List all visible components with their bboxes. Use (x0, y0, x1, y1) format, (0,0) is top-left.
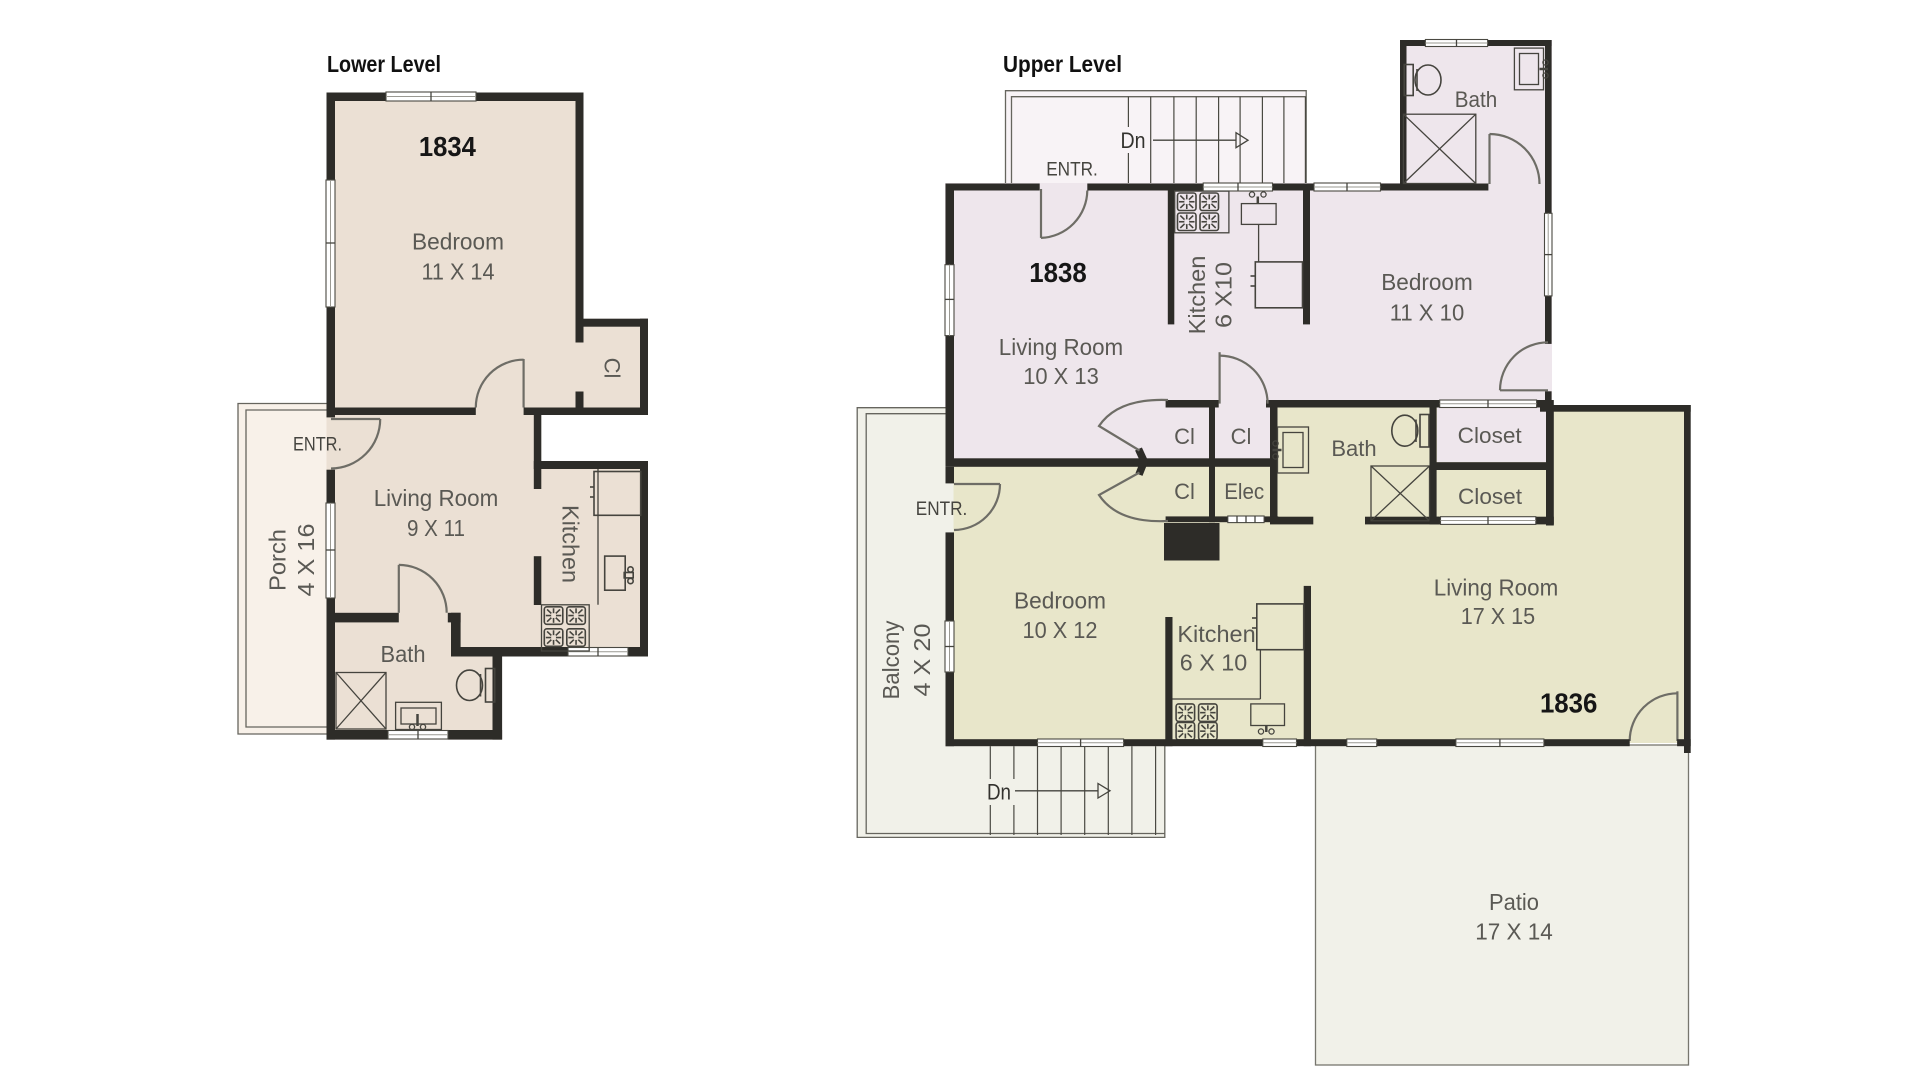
svg-text:Bedroom: Bedroom (1381, 269, 1473, 295)
svg-text:6 X10: 6 X10 (1211, 262, 1237, 328)
svg-text:6 X 10: 6 X 10 (1180, 650, 1248, 676)
svg-text:Cl: Cl (1174, 479, 1195, 504)
svg-text:Lower Level: Lower Level (327, 51, 441, 77)
svg-text:ENTR.: ENTR. (1046, 160, 1098, 181)
svg-text:Bath: Bath (1455, 87, 1498, 112)
svg-text:9 X 11: 9 X 11 (407, 515, 465, 541)
svg-text:Closet: Closet (1458, 484, 1522, 509)
svg-text:Bath: Bath (1331, 436, 1376, 461)
svg-text:Living Room: Living Room (999, 334, 1123, 360)
svg-text:1838: 1838 (1029, 257, 1087, 288)
svg-text:11 X 10: 11 X 10 (1390, 300, 1465, 326)
svg-text:10 X 13: 10 X 13 (1023, 363, 1099, 389)
svg-text:Elec: Elec (1224, 479, 1264, 504)
svg-text:1836: 1836 (1540, 688, 1598, 719)
svg-text:4 X 16: 4 X 16 (293, 524, 319, 597)
svg-text:10 X 12: 10 X 12 (1023, 617, 1098, 643)
svg-text:17 X 14: 17 X 14 (1475, 919, 1553, 945)
svg-text:Dn: Dn (1121, 128, 1146, 153)
svg-text:Porch: Porch (265, 529, 291, 591)
svg-text:Kitchen: Kitchen (1177, 621, 1255, 647)
svg-text:Bath: Bath (381, 641, 426, 667)
svg-text:4 X 20: 4 X 20 (909, 624, 935, 697)
svg-text:ENTR.: ENTR. (916, 499, 968, 520)
svg-text:Kitchen: Kitchen (1184, 256, 1210, 335)
svg-text:Balcony: Balcony (878, 620, 904, 699)
svg-text:Patio: Patio (1489, 889, 1539, 915)
svg-text:Upper Level: Upper Level (1003, 51, 1122, 77)
svg-text:Bedroom: Bedroom (1014, 588, 1106, 614)
svg-text:ENTR.: ENTR. (293, 435, 342, 456)
svg-text:Closet: Closet (1458, 423, 1522, 448)
svg-text:Kitchen: Kitchen (558, 505, 584, 583)
svg-text:Cl: Cl (1174, 424, 1195, 449)
svg-text:1834: 1834 (419, 131, 476, 162)
svg-text:Bedroom: Bedroom (412, 229, 504, 255)
svg-text:Dn: Dn (987, 780, 1011, 805)
svg-text:Cl: Cl (600, 358, 625, 379)
svg-text:Living Room: Living Room (374, 485, 499, 511)
svg-text:Living Room: Living Room (1434, 575, 1559, 601)
svg-text:11 X 14: 11 X 14 (422, 259, 495, 285)
svg-text:Cl: Cl (1231, 424, 1252, 449)
svg-text:17 X 15: 17 X 15 (1461, 603, 1535, 629)
